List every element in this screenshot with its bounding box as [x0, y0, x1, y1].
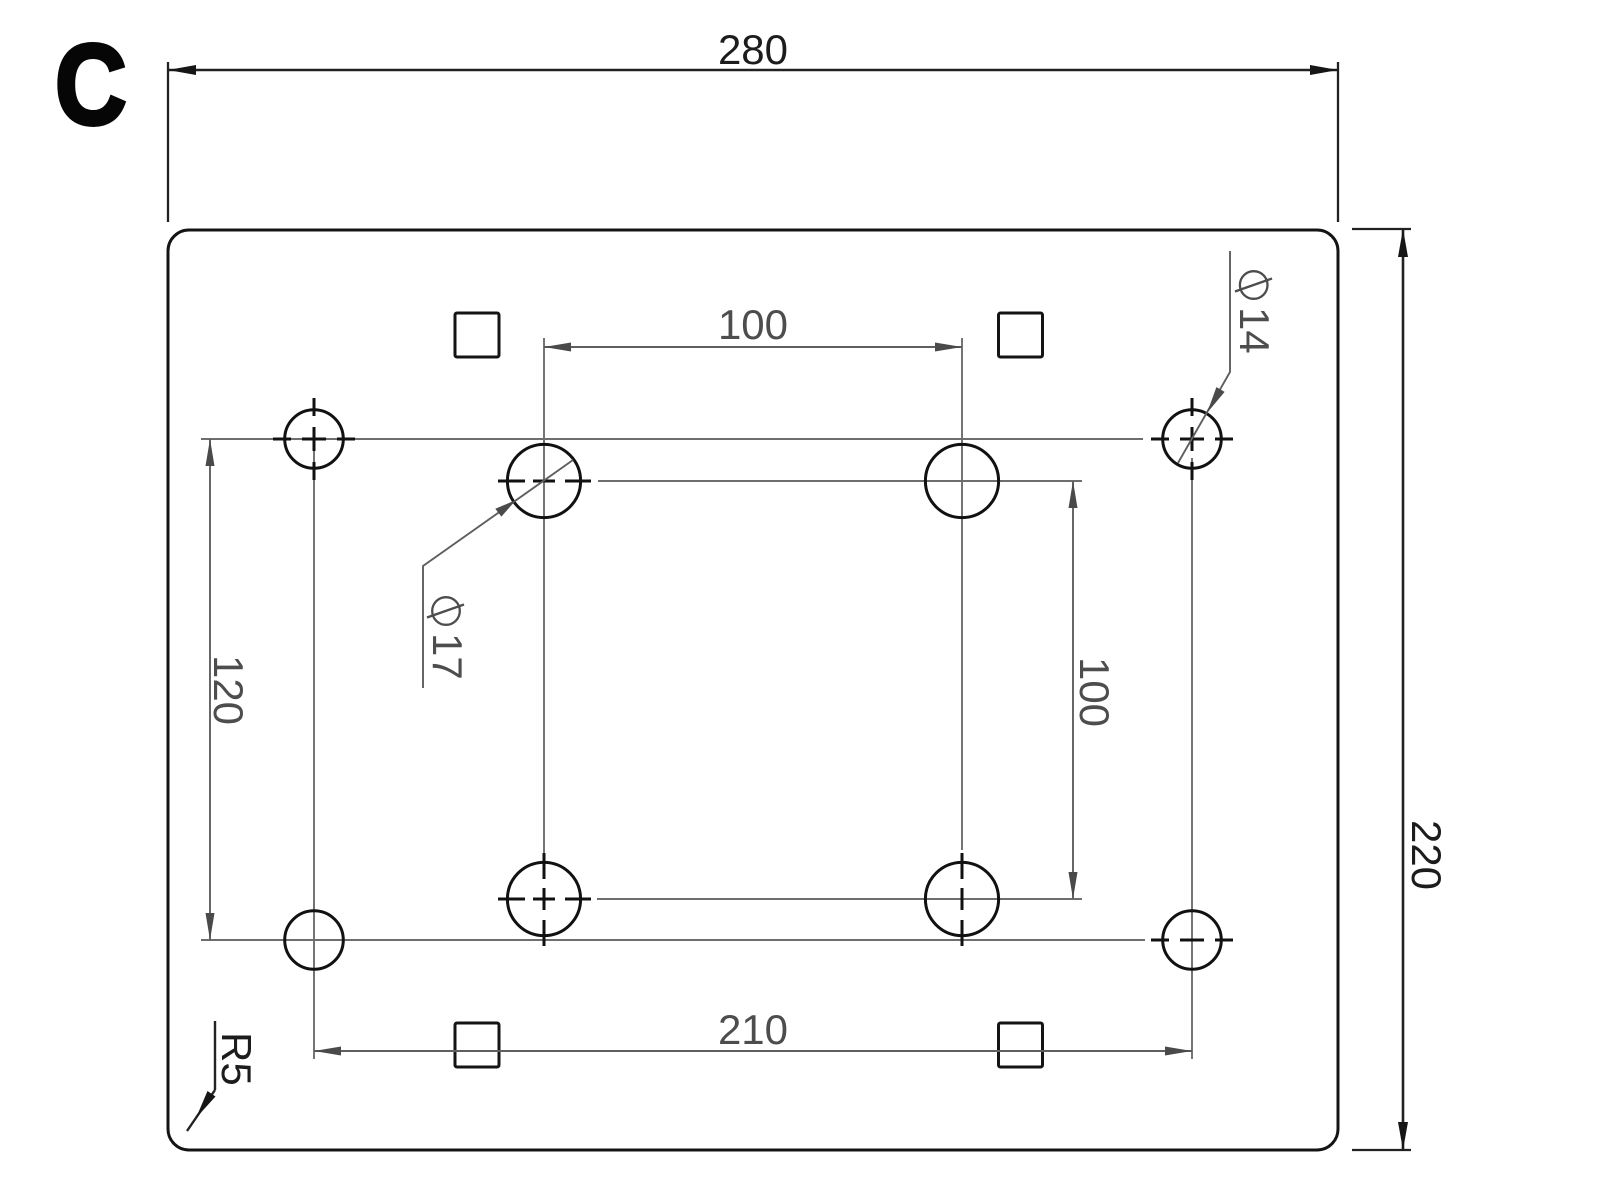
svg-text:R5: R5: [213, 1032, 260, 1086]
svg-text:17: 17: [424, 633, 471, 680]
svg-text:220: 220: [1403, 820, 1450, 890]
svg-text:14: 14: [1231, 307, 1278, 354]
svg-text:C: C: [55, 21, 127, 149]
svg-text:100: 100: [718, 301, 788, 348]
svg-text:280: 280: [718, 26, 788, 73]
svg-text:100: 100: [1071, 657, 1118, 727]
svg-text:120: 120: [205, 655, 252, 725]
svg-text:210: 210: [718, 1006, 788, 1053]
